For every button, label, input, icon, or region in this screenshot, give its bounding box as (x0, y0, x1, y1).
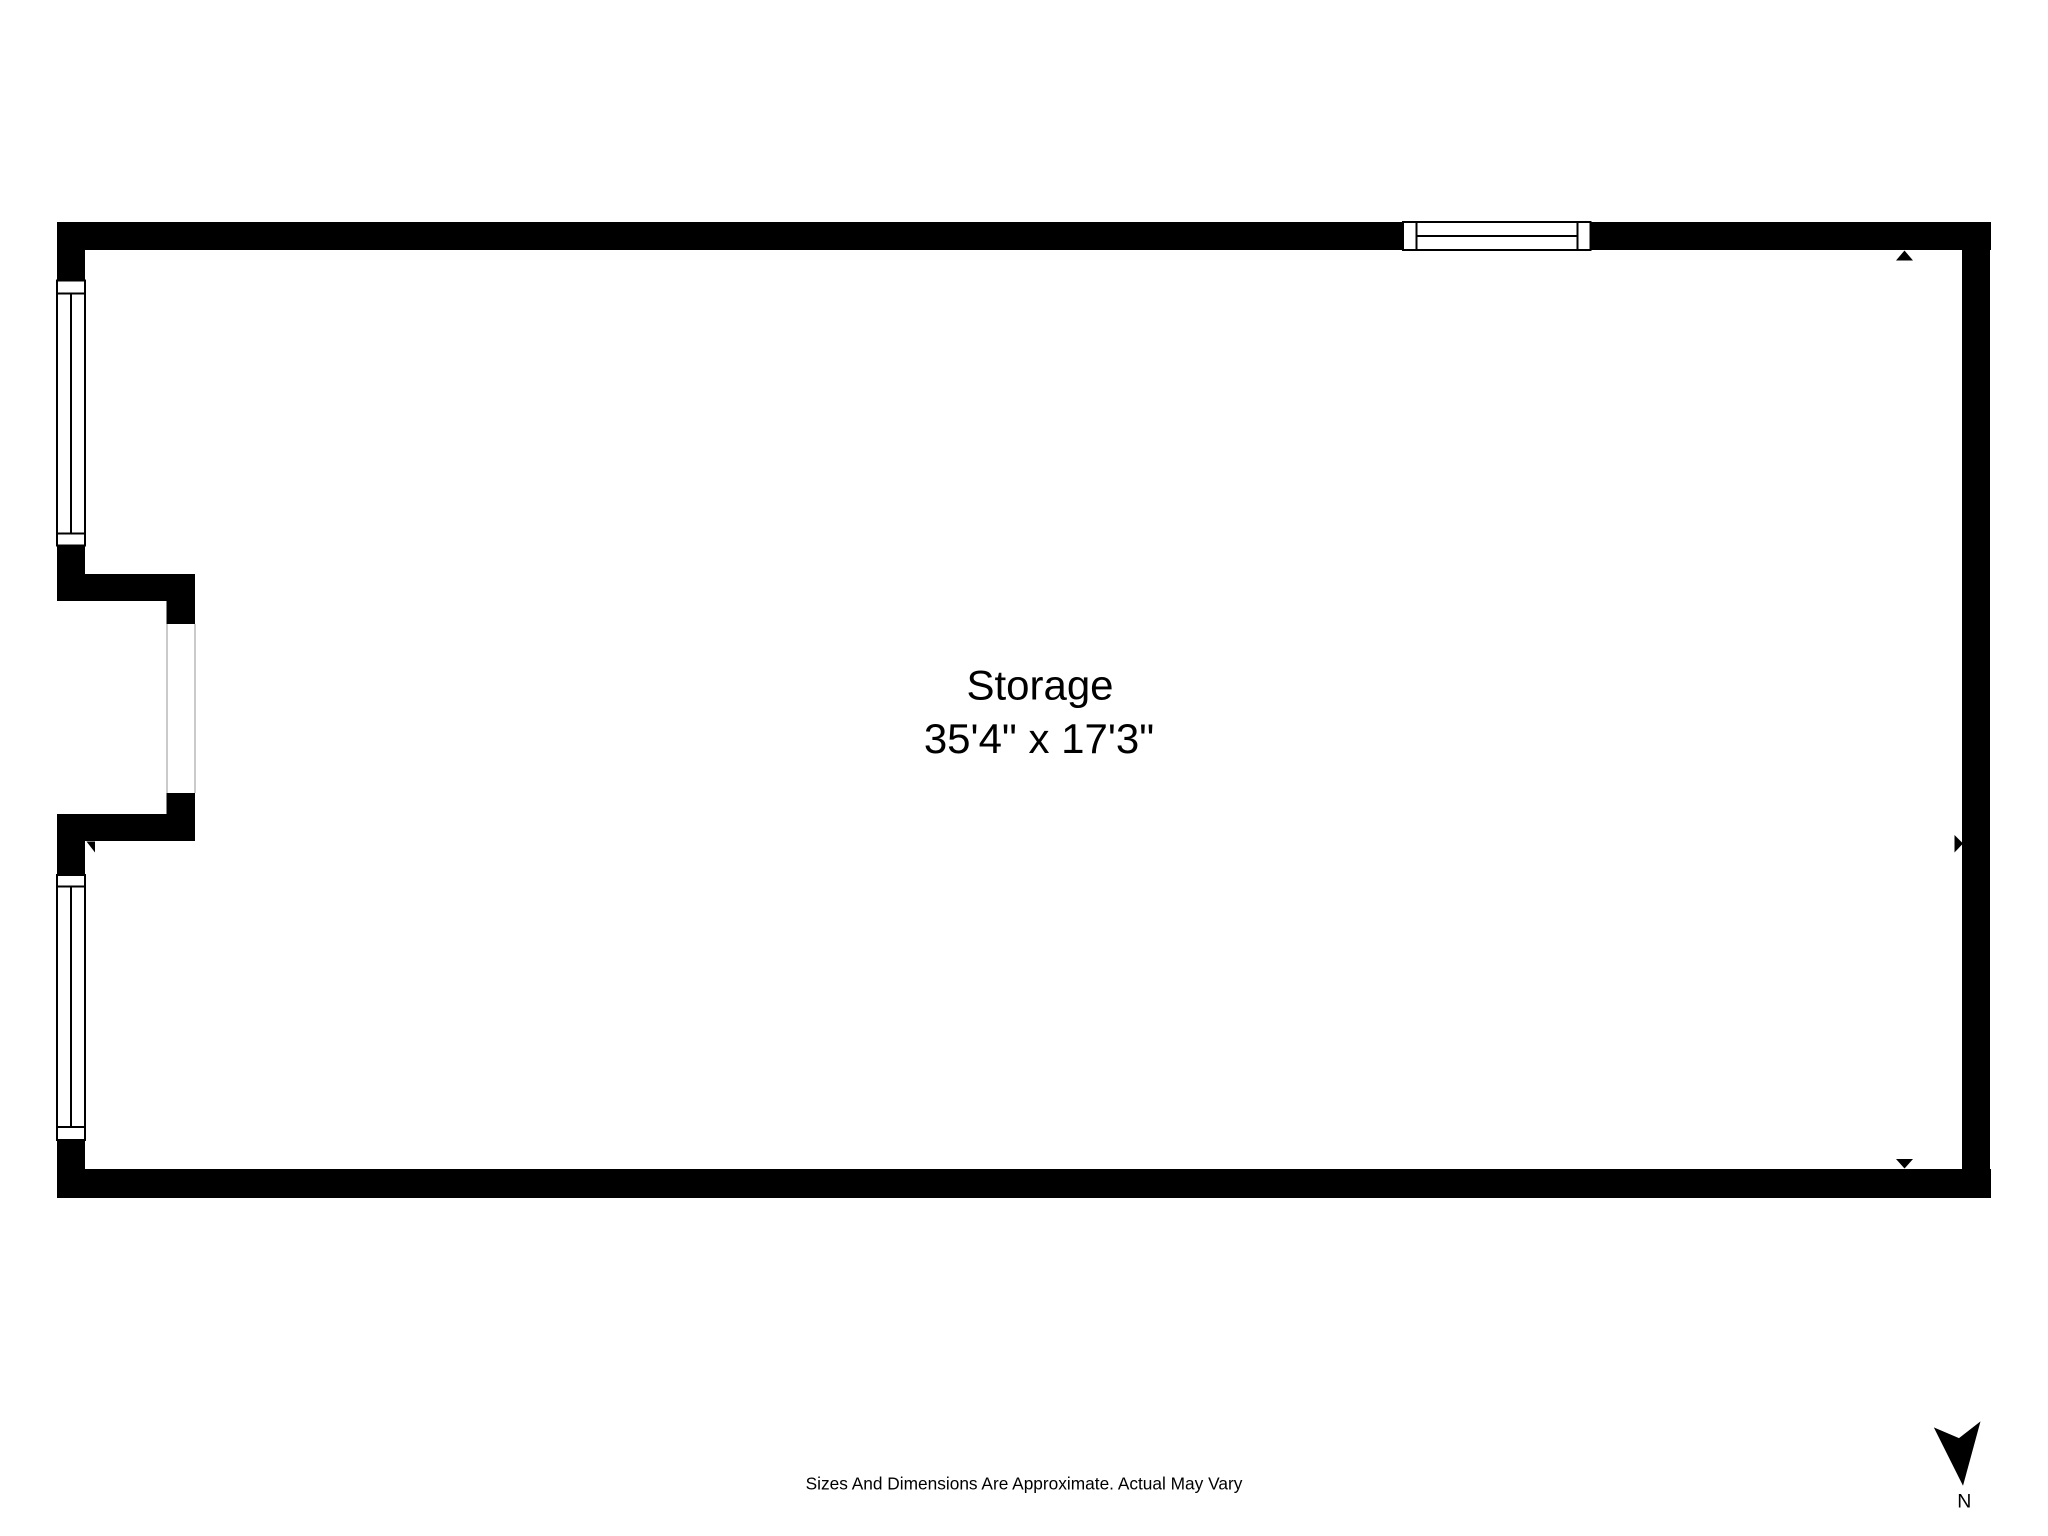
svg-text:Storage: Storage (966, 662, 1113, 709)
svg-text:N: N (1957, 1491, 1971, 1513)
svg-text:35'4" x 17'3": 35'4" x 17'3" (924, 715, 1154, 762)
svg-text:Sizes And Dimensions Are Appro: Sizes And Dimensions Are Approximate. Ac… (806, 1474, 1243, 1494)
